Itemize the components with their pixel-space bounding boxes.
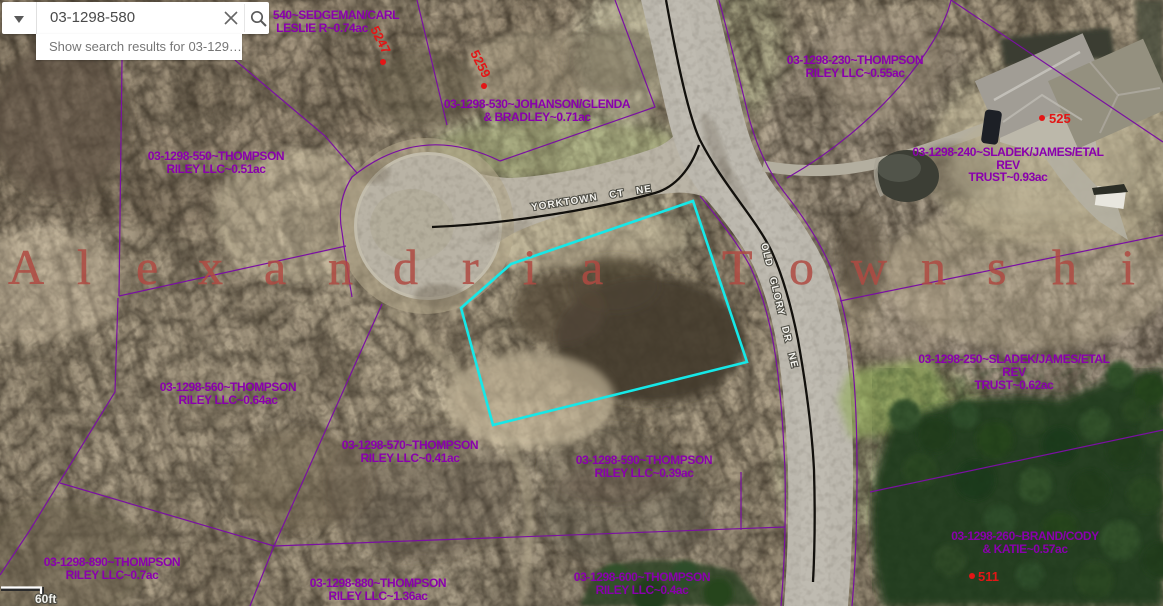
svg-text:03-1298-880~THOMPSON: 03-1298-880~THOMPSON [310,576,446,590]
svg-text:n: n [328,239,353,295]
svg-text:A: A [8,239,44,295]
svg-text:RILEY LLC~0.7ac: RILEY LLC~0.7ac [66,568,160,582]
svg-text:a: a [264,239,286,295]
svg-text:RILEY LLC~0.64ac: RILEY LLC~0.64ac [178,393,278,407]
svg-text:RILEY LLC~0.4ac: RILEY LLC~0.4ac [596,583,690,597]
svg-text:o: o [789,239,814,295]
svg-text:T: T [722,239,753,295]
svg-text:511: 511 [978,569,999,584]
svg-text:& BRADLEY~0.71ac: & BRADLEY~0.71ac [483,110,591,124]
svg-text:d: d [393,239,418,295]
svg-text:i: i [1121,239,1135,295]
svg-text:i: i [523,239,537,295]
svg-text:l: l [77,239,91,295]
svg-text:n: n [921,239,946,295]
svg-text:h: h [1052,239,1077,295]
svg-text:RILEY LLC~0.41ac: RILEY LLC~0.41ac [360,451,460,465]
svg-text:& KATIE~0.57ac: & KATIE~0.57ac [982,542,1068,556]
svg-text:03-1298-550~THOMPSON: 03-1298-550~THOMPSON [148,149,284,163]
svg-text:TRUST~0.93ac: TRUST~0.93ac [969,170,1049,184]
svg-text:03-1298-890~THOMPSON: 03-1298-890~THOMPSON [44,555,180,569]
svg-text:s: s [987,239,1006,295]
svg-text:RILEY LLC~1.36ac: RILEY LLC~1.36ac [328,589,428,603]
svg-text:TRUST~0.62ac: TRUST~0.62ac [975,378,1055,392]
svg-text:r: r [462,239,479,295]
svg-text:03-1298-250~SLADEK/JAMES/ETAL: 03-1298-250~SLADEK/JAMES/ETAL [918,352,1109,366]
svg-text:03-1298-570~THOMPSON: 03-1298-570~THOMPSON [342,438,478,452]
svg-text:REV: REV [1002,365,1026,379]
svg-text:RILEY LLC~0.39ac: RILEY LLC~0.39ac [594,466,694,480]
svg-text:RILEY LLC~0.51ac: RILEY LLC~0.51ac [166,162,266,176]
svg-text:525: 525 [1049,111,1071,126]
svg-text:LESLIE R~0.74ac: LESLIE R~0.74ac [276,21,368,35]
svg-text:03-1298-240~SLADEK/JAMES/ETAL: 03-1298-240~SLADEK/JAMES/ETAL [912,145,1103,159]
svg-text:x: x [198,239,223,295]
svg-text:w: w [851,239,887,295]
svg-text:a: a [581,239,603,295]
svg-text:e: e [136,239,158,295]
svg-text:540~SEDGEMAN/CARL: 540~SEDGEMAN/CARL [273,8,399,22]
svg-text:60ft: 60ft [35,592,56,606]
svg-text:03-1298-600~THOMPSON: 03-1298-600~THOMPSON [574,570,710,584]
svg-text:03-1298-590~THOMPSON: 03-1298-590~THOMPSON [576,453,712,467]
svg-text:RILEY LLC~0.55ac: RILEY LLC~0.55ac [805,66,905,80]
svg-text:03-1298-560~THOMPSON: 03-1298-560~THOMPSON [160,380,296,394]
svg-text:03-1298-530~JOHANSON/GLENDA: 03-1298-530~JOHANSON/GLENDA [444,97,631,111]
svg-text:03-1298-230~THOMPSON: 03-1298-230~THOMPSON [787,53,923,67]
svg-text:03-1298-260~BRAND/CODY: 03-1298-260~BRAND/CODY [951,529,1099,543]
